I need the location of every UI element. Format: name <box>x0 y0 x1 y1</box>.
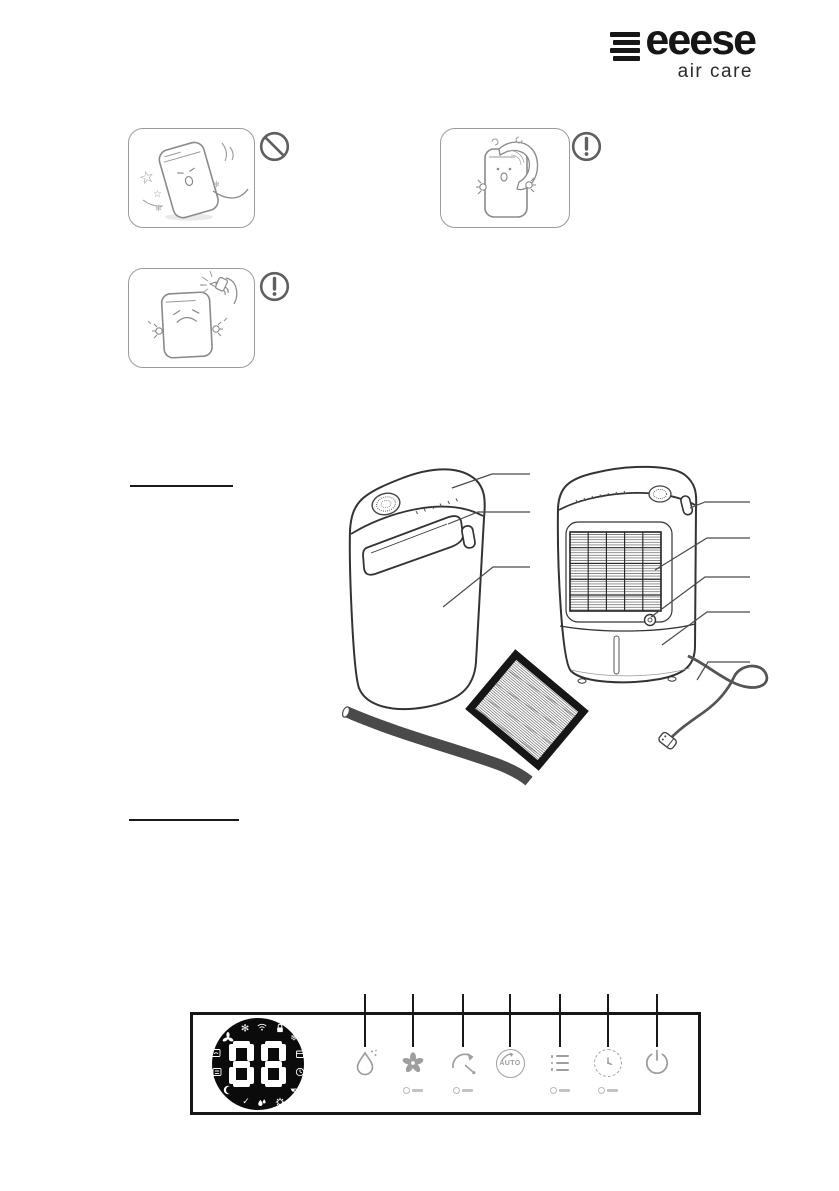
fan-icon <box>396 1046 430 1080</box>
power-icon <box>640 1046 674 1080</box>
swing-arrow-icon <box>446 1046 480 1080</box>
defrost-icon: ❄ <box>290 1033 298 1043</box>
section-heading-rule <box>129 819 239 821</box>
list-button-sublabel <box>537 1086 583 1095</box>
star-icon: ☆ <box>153 189 162 200</box>
warning-exclamation-icon <box>259 271 290 302</box>
manual-page: eeese air care ☆ ☆ ✻ ✻ <box>0 0 839 1191</box>
warning-exclamation-icon <box>571 131 602 162</box>
fan-button-sublabel <box>390 1086 436 1095</box>
top-dial-drawing <box>649 486 671 502</box>
air-inlet-grille-drawing <box>570 532 661 611</box>
brand-name: eeese <box>645 20 755 61</box>
brand-tagline: air care <box>553 61 755 83</box>
swing-button-sublabel <box>440 1086 486 1095</box>
segment-display <box>229 1041 286 1087</box>
parts-diagram <box>330 450 800 800</box>
auto-circle-icon: AUTO <box>496 1049 525 1078</box>
sprayed-device-drawing <box>129 269 254 367</box>
star-icon: ☆ <box>137 167 156 189</box>
warning-illustration-covered <box>440 128 570 228</box>
mode-list-button <box>537 1040 583 1086</box>
list-icon <box>551 1055 570 1071</box>
covered-device-drawing <box>441 129 569 227</box>
tipping-device-drawing: ☆ ☆ ✻ ✻ <box>129 129 254 227</box>
dehumidifier-back-view <box>558 467 696 683</box>
auto-arrow-icon <box>501 1052 515 1062</box>
swing-button <box>440 1040 486 1086</box>
logo-bars-icon <box>610 32 640 61</box>
timer-clock-icon <box>594 1049 622 1077</box>
humidity-drop-icon <box>348 1046 382 1080</box>
section-heading-rule <box>130 485 233 487</box>
fan-speed-button <box>390 1040 436 1086</box>
check-icon: ✓ <box>242 1096 250 1106</box>
brand-logo: eeese air care <box>553 20 755 83</box>
timer-button <box>585 1040 631 1086</box>
warning-illustration-spray <box>128 268 255 368</box>
timer-button-sublabel <box>585 1086 631 1095</box>
prohibition-icon <box>259 131 290 162</box>
warning-illustration-tip-over: ☆ ☆ ✻ ✻ <box>128 128 255 228</box>
power-cord-drawing <box>213 189 248 198</box>
fan-high-icon: ✻ <box>241 1024 249 1035</box>
crash-mark-icon: ✻ <box>213 180 220 189</box>
humidity-button <box>342 1040 388 1086</box>
auto-button: AUTO <box>487 1040 533 1086</box>
power-button <box>634 1040 680 1086</box>
